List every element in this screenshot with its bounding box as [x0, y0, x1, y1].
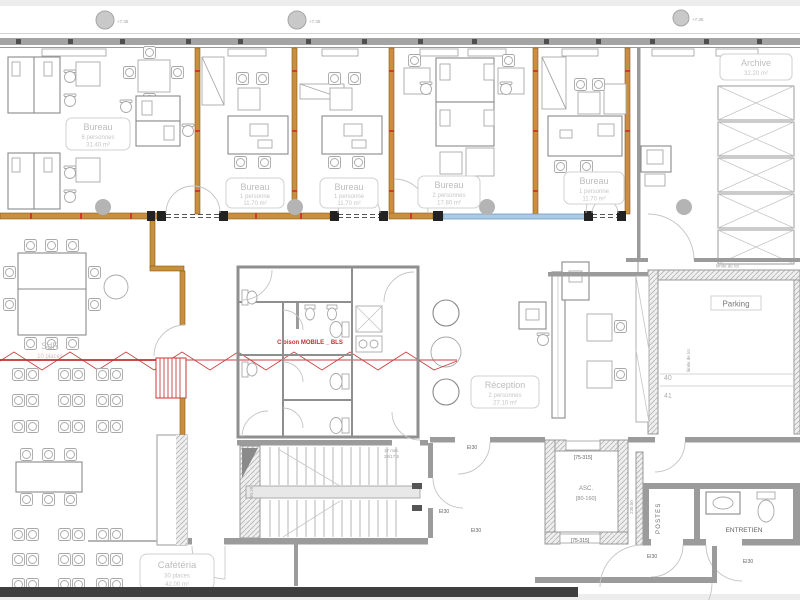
- room-label-parking: Parking: [711, 296, 761, 310]
- room-sdr: SdR 10 places: [4, 240, 129, 361]
- chair-icon: [67, 240, 79, 252]
- toilet-icon: [330, 374, 349, 390]
- lounge-chair-icon: [104, 275, 128, 299]
- elevator-door-size: [75-315]: [571, 538, 590, 544]
- room-bureau-1p-a: Bureau 1 personne 11.70 m²: [202, 57, 288, 208]
- room-name: SdR: [41, 341, 59, 351]
- lot-limit-note: limite de lot: [716, 264, 740, 269]
- room-area: 27.10 m²: [493, 401, 517, 407]
- room-label-bureau-1p-b: Bureau 1 personne 11.70 m²: [320, 178, 378, 208]
- floor-plan-canvas: +7.35 +7.35 +7.35: [0, 0, 800, 600]
- chair-icon: [237, 73, 249, 85]
- chair-icon: [329, 73, 341, 85]
- grid-markers: +7.35 +7.35 +7.35: [96, 10, 704, 29]
- cafeteria-zone: Cafétéria 30 places 42.00 m²: [88, 435, 225, 590]
- room-capacity: 2 personnes: [432, 193, 465, 199]
- chair-icon: [64, 166, 76, 179]
- chair-icon: [349, 73, 361, 85]
- fire-door-label: EI30: [439, 509, 450, 515]
- urinal-icon: [305, 305, 315, 320]
- room-name: Archive: [741, 58, 771, 68]
- room-label-bureau-1p-a: Bureau 1 personne 11.70 m²: [226, 178, 284, 208]
- room-bureau-2p: Bureau 2 personnes 17.80 m²: [404, 55, 524, 209]
- wood-partition: [533, 48, 538, 214]
- toilet-icon: [330, 322, 349, 338]
- stair-note: 17 mar.: [384, 448, 399, 453]
- room-area: 11.70 m²: [243, 201, 266, 207]
- corridor-dimension: 230.50: [629, 500, 634, 514]
- room-name: Bureau: [83, 122, 112, 132]
- armchair-icon: [433, 300, 459, 326]
- glass-partition: [443, 214, 585, 219]
- toilet-icon: [757, 492, 775, 499]
- corridor-wall: [0, 179, 626, 221]
- parking-spot-number: 41: [664, 393, 672, 400]
- chair-icon: [353, 157, 365, 169]
- chair-icon: [172, 67, 184, 79]
- chair-icon: [25, 240, 37, 252]
- parking-spot-number: 40: [664, 375, 672, 382]
- armchair-icon: [433, 379, 459, 405]
- room-capacity: 1 personne: [579, 189, 610, 195]
- stair-dimension: 90.29: [249, 486, 254, 498]
- sink-icon: [242, 362, 257, 377]
- room-area: 31.40 m²: [86, 143, 110, 149]
- room-capacity: 1 personne: [240, 194, 271, 200]
- toilet-icon: [330, 418, 349, 434]
- chair-icon: [25, 338, 37, 350]
- elevator: [75-315] ASC. [80-160] [75-315] 230.50: [545, 440, 643, 545]
- elevator-door-size: [75-315]: [574, 455, 593, 461]
- chair-icon: [4, 267, 16, 279]
- facade-wall: [0, 34, 800, 57]
- chair-icon: [615, 321, 627, 333]
- exterior-wall-band: [0, 587, 578, 597]
- chair-icon: [593, 79, 605, 91]
- chair-icon: [124, 67, 136, 79]
- chair-icon: [581, 161, 593, 173]
- room-label-postes: POSTES: [656, 502, 662, 534]
- room-capacity: 1 personne: [334, 194, 365, 200]
- room-name: Bureau: [240, 182, 269, 192]
- room-bureau-1p-c: Bureau 1 personne 11.70 m²: [542, 57, 626, 204]
- mobile-partition-label: Cloison MOBILE _ BLS: [277, 340, 343, 346]
- cafeteria-table: [16, 462, 82, 492]
- grid-marker-label: +7.35: [117, 19, 129, 24]
- stair-note: 28/17,5: [384, 454, 400, 459]
- chair-icon: [182, 124, 194, 137]
- chair-icon: [64, 70, 76, 83]
- chair-icon: [500, 82, 512, 95]
- chair-icon: [420, 82, 432, 95]
- chair-icon: [257, 73, 269, 85]
- room-area: 11.70 m²: [337, 201, 360, 207]
- fire-door-label: EI30: [471, 528, 482, 534]
- wc-block: [238, 267, 418, 437]
- grid-marker-label: +7.35: [692, 17, 704, 22]
- wood-partition: [389, 48, 394, 214]
- elevator-cabin-size: [80-160]: [576, 496, 597, 502]
- room-label-bureau-6p: Bureau 6 personnes 31.40 m²: [66, 118, 130, 150]
- chair-icon: [235, 157, 247, 169]
- fire-door-label: EI30: [467, 445, 478, 451]
- room-name: Parking: [722, 300, 749, 309]
- room-label-archive: Archive 32.20 m²: [720, 54, 792, 80]
- chair-icon: [46, 240, 58, 252]
- copier-icon: [641, 146, 671, 186]
- room-area: 17.80 m²: [437, 201, 461, 207]
- chair-icon: [409, 55, 421, 67]
- room-label-bureau-1p-c: Bureau 1 personne 11.70 m²: [564, 172, 624, 204]
- page-margin-top: [0, 0, 800, 6]
- chair-icon: [67, 338, 79, 350]
- archive-racks: [718, 86, 794, 264]
- chair-icon: [575, 79, 587, 91]
- chair-icon: [259, 157, 271, 169]
- room-capacity: 30 places: [164, 574, 190, 580]
- wood-partition: [625, 48, 630, 214]
- room-capacity: 6 personnes: [81, 135, 114, 141]
- elevator-label: ASC.: [579, 486, 593, 492]
- chair-icon: [89, 299, 101, 311]
- partition-stack: [156, 358, 186, 398]
- fire-door-label: EI30: [743, 559, 754, 565]
- chair-icon: [89, 267, 101, 279]
- urinal-icon: [327, 305, 337, 320]
- wood-partition: [292, 48, 297, 214]
- room-name: Bureau: [434, 180, 463, 190]
- chair-icon: [144, 47, 156, 59]
- room-name: Bureau: [334, 182, 363, 192]
- chair-icon: [537, 333, 549, 346]
- coffee-table-icon: [431, 337, 461, 367]
- room-parking: 40 41 Parking limite de lot: [648, 270, 800, 434]
- grid-marker-label: +7.35: [309, 19, 321, 24]
- fire-door-label: EI30: [647, 554, 658, 560]
- room-name: Cafétéria: [158, 560, 197, 571]
- room-label-bureau-2p: Bureau 2 personnes 17.80 m²: [418, 176, 480, 208]
- chair-icon: [615, 369, 627, 381]
- room-name: Bureau: [579, 176, 608, 186]
- chair-icon: [64, 190, 76, 203]
- floor-plan-drawing: +7.35 +7.35 +7.35: [0, 0, 800, 600]
- room-name: Réception: [485, 380, 526, 390]
- chair-icon: [555, 161, 567, 173]
- chair-icon: [120, 100, 132, 113]
- chair-icon: [64, 94, 76, 107]
- wood-partition: [195, 48, 200, 214]
- room-bureau-1p-b: Bureau 1 personne 11.70 m²: [300, 73, 382, 209]
- room-area: 11.70 m²: [582, 197, 605, 203]
- room-capacity: 2 personnes: [488, 393, 521, 399]
- room-label-entretien: ENTRETIEN: [726, 527, 763, 534]
- room-label-cafeteria: Cafétéria 30 places 42.00 m²: [140, 554, 214, 590]
- chair-icon: [503, 55, 515, 67]
- room-reception: Réception 2 personnes 27.10 m²: [431, 220, 649, 422]
- chair-icon: [4, 299, 16, 311]
- lot-limit-note: limite de lot: [686, 348, 691, 372]
- seating-rows: [13, 369, 123, 591]
- room-archive: Archive 32.20 m² limite de lot: [626, 47, 800, 269]
- chair-icon: [329, 157, 341, 169]
- room-label-reception: Réception 2 personnes 27.10 m²: [471, 376, 539, 408]
- room-bureau-6p: Bureau 6 personnes 31.40 m²: [8, 47, 194, 210]
- room-area: 32.20 m²: [744, 71, 768, 77]
